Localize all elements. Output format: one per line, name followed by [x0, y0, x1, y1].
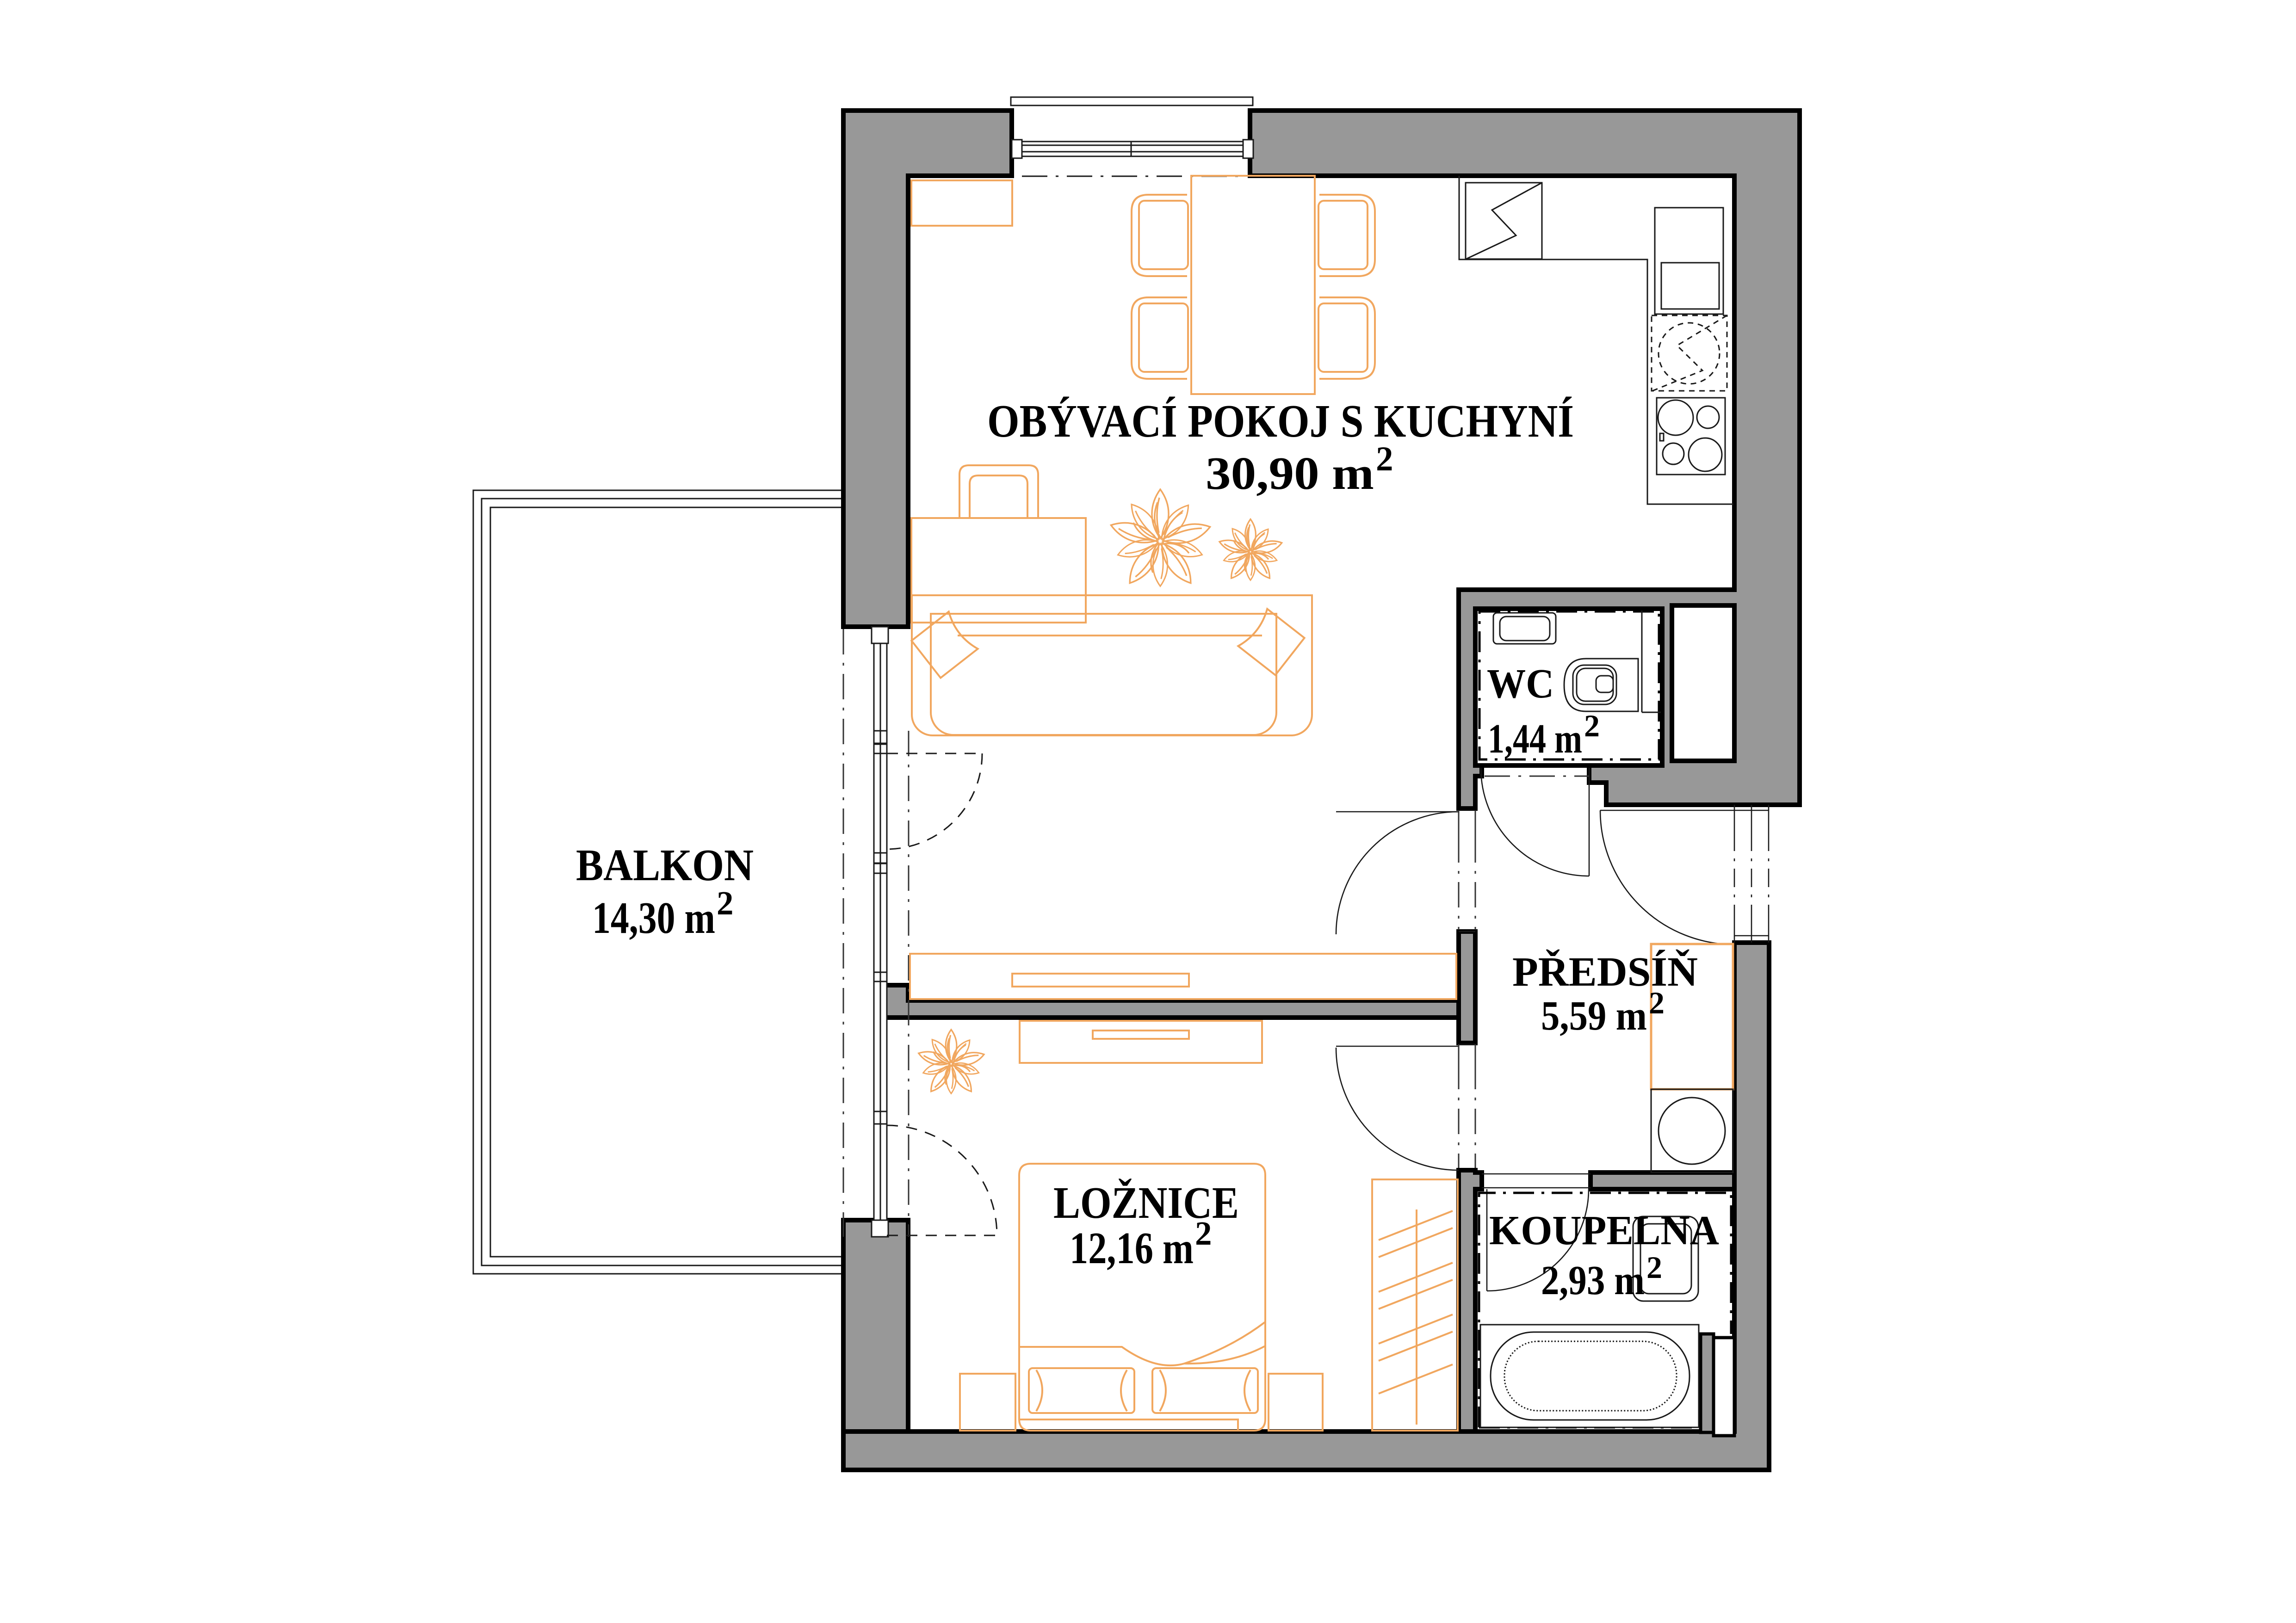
svg-text:2: 2	[717, 884, 734, 922]
svg-text:2,93 m: 2,93 m	[1541, 1258, 1645, 1303]
svg-text:2: 2	[1649, 985, 1665, 1020]
svg-text:2: 2	[1376, 440, 1393, 478]
svg-text:BALKON: BALKON	[576, 840, 754, 890]
svg-text:5,59 m: 5,59 m	[1541, 993, 1647, 1039]
svg-text:2: 2	[1584, 708, 1600, 743]
svg-text:PŘEDSÍŇ: PŘEDSÍŇ	[1512, 949, 1698, 995]
svg-text:2: 2	[1195, 1215, 1212, 1252]
svg-text:1,44 m: 1,44 m	[1488, 716, 1582, 762]
svg-text:KOUPELNA: KOUPELNA	[1489, 1208, 1719, 1253]
svg-text:WC: WC	[1487, 661, 1554, 707]
svg-text:2: 2	[1646, 1250, 1662, 1285]
svg-text:OBÝVACÍ POKOJ S KUCHYNÍ: OBÝVACÍ POKOJ S KUCHYNÍ	[987, 395, 1574, 447]
svg-text:12,16 m: 12,16 m	[1070, 1223, 1194, 1273]
svg-text:14,30 m: 14,30 m	[592, 893, 715, 943]
svg-text:30,90 m: 30,90 m	[1206, 447, 1374, 499]
